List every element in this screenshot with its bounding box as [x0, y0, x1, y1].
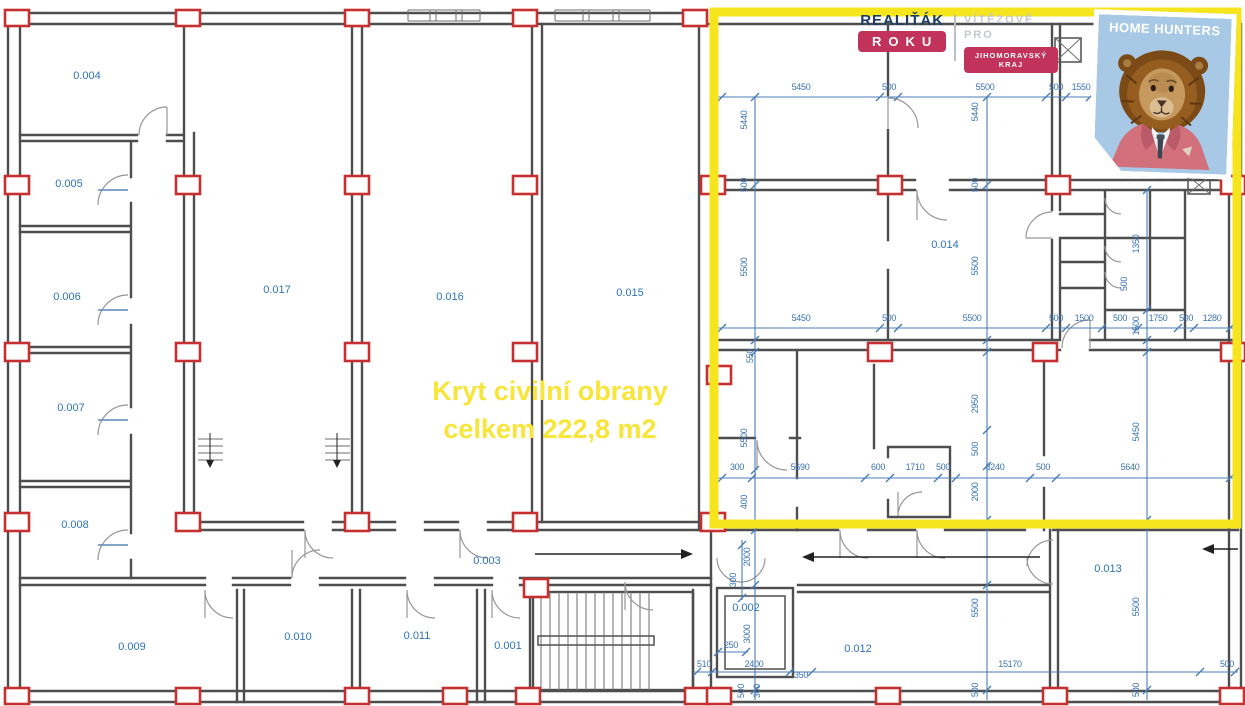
dim-label: 5450 [792, 313, 811, 323]
dim-label: 3000 [742, 624, 752, 643]
realitak-title: REALIŤÁK [860, 13, 944, 29]
dim-label: 5500 [976, 82, 995, 92]
arrow-left-icon [1202, 544, 1214, 554]
hall-steps [198, 433, 350, 468]
room-label: 0.006 [53, 291, 81, 303]
annotation: Kryt civilní obrany celkem 222,8 m2 [432, 376, 668, 444]
dim-label: 5440 [739, 110, 749, 129]
doors-layer [98, 98, 1121, 618]
dim-label: 5500 [970, 598, 980, 617]
dim-label: 600 [871, 462, 885, 472]
window-symbol [408, 10, 480, 21]
dim-label: 5450 [792, 82, 811, 92]
dim-label: 500 [1049, 82, 1063, 92]
dim-label: 1750 [1149, 313, 1168, 323]
dim-label: 300 [730, 462, 744, 472]
dim-label: 500 [882, 82, 896, 92]
annotation-line1: Kryt civilní obrany [432, 376, 668, 406]
dim-label: 350 [794, 670, 808, 680]
step-arrow-icon [333, 460, 341, 468]
room-label: 0.001 [494, 640, 522, 652]
arrow-left-icon [802, 552, 814, 562]
dim-label: 1350 [1131, 234, 1141, 253]
dim-label: 1710 [906, 462, 925, 472]
room-label: 0.002 [732, 602, 760, 614]
room-label: 0.017 [263, 284, 291, 296]
room-label: 0.015 [616, 287, 644, 299]
step-arrow-icon [206, 460, 214, 468]
dim-label: 500 [1049, 313, 1063, 323]
dim-label: 5500 [963, 313, 982, 323]
room-label: 0.010 [284, 631, 312, 643]
dim-label: 5640 [1121, 462, 1140, 472]
dim-label: 500 [1113, 313, 1127, 323]
dim-label: 1550 [1072, 82, 1091, 92]
dim-label: 500 [1179, 313, 1193, 323]
dim-label: 500 [970, 683, 980, 697]
direction-arrows [535, 544, 1238, 562]
home-hunters-card-inner: HOME HUNTERS [1093, 14, 1231, 175]
dim-label: 500 [970, 442, 980, 456]
lion-in-suit-illustration [1094, 34, 1232, 171]
floor-plan-page: 5450 500 5500 500 1550 5450 500 5500 500… [0, 0, 1245, 706]
realitak-roku-badge: REALIŤÁK ROKU VÍTĚZOVÉ PRO JIHOMORAVSKÝ … [858, 13, 1058, 63]
dim-label: 500 [1220, 659, 1234, 669]
room-label: 0.011 [404, 630, 431, 642]
dim-label: 500 [736, 684, 746, 698]
roku-pill: ROKU [858, 31, 946, 52]
arrow-right-icon [681, 549, 693, 559]
room-label: 0.014 [931, 239, 959, 251]
dim-label: 300 [728, 573, 738, 587]
room-label: 0.004 [73, 70, 101, 82]
badge-divider [954, 15, 956, 61]
dim-label: 500 [1036, 462, 1050, 472]
dim-label: 2000 [742, 547, 752, 566]
stair-treads [541, 592, 649, 690]
dim-label: 500 [1131, 683, 1141, 697]
dim-label: 500 [936, 462, 950, 472]
stair-handrail [538, 636, 654, 645]
dim-label: 2000 [970, 482, 980, 501]
room-label: 0.012 [844, 643, 872, 655]
dim-label: 5440 [970, 102, 980, 121]
floor-plan-canvas: 5450 500 5500 500 1550 5450 500 5500 500… [0, 0, 1245, 706]
room-label: 0.007 [57, 402, 85, 414]
left-section-walls [20, 24, 711, 578]
dim-label: 300 [752, 684, 762, 698]
window-symbol [555, 10, 650, 21]
home-hunters-card: HOME HUNTERS [1088, 9, 1237, 180]
dim-label: 15170 [998, 659, 1022, 669]
dim-label: 5500 [739, 428, 749, 447]
room-label: 0.009 [118, 641, 146, 653]
staircase [533, 592, 693, 690]
dim-label: 2950 [970, 394, 980, 413]
dim-label: 510 [697, 659, 711, 669]
dim-label: 5500 [1131, 597, 1141, 616]
dim-label: 1280 [1203, 313, 1222, 323]
room-labels-layer: 0.001 0.002 0.003 0.004 0.005 0.006 0.00… [53, 70, 1122, 655]
room-label: 0.005 [55, 178, 83, 190]
dim-label: 400 [739, 495, 749, 509]
dim-label: 5450 [1131, 422, 1141, 441]
dim-label: 550 [745, 349, 755, 363]
realitak-badge-left: REALIŤÁK ROKU [858, 13, 946, 63]
dim-label: 1500 [1075, 313, 1094, 323]
room-label: 0.008 [61, 519, 89, 531]
dim-label: 2400 [745, 659, 764, 669]
realitak-tagline: VÍTĚZOVÉ PRO [964, 13, 1058, 43]
annotation-line2: celkem 222,8 m2 [443, 414, 656, 444]
dim-label: 3240 [986, 462, 1005, 472]
realitak-badge-right: VÍTĚZOVÉ PRO JIHOMORAVSKÝ KRAJ [964, 13, 1058, 63]
dim-label: 5500 [739, 257, 749, 276]
dim-label: 500 [970, 178, 980, 192]
room-label: 0.013 [1094, 563, 1122, 575]
dim-label: 250 [724, 640, 738, 650]
dim-label: 5690 [791, 462, 810, 472]
room-label: 0.016 [436, 291, 464, 303]
dim-label: 500 [882, 313, 896, 323]
dim-label: 1500 [1131, 316, 1141, 335]
corridor-walls [20, 522, 1238, 592]
region-pill: JIHOMORAVSKÝ KRAJ [964, 47, 1058, 73]
room-label: 0.003 [473, 555, 501, 567]
dim-label: 500 [1119, 277, 1129, 291]
dim-label: 500 [739, 178, 749, 192]
dim-label: 5500 [970, 256, 980, 275]
